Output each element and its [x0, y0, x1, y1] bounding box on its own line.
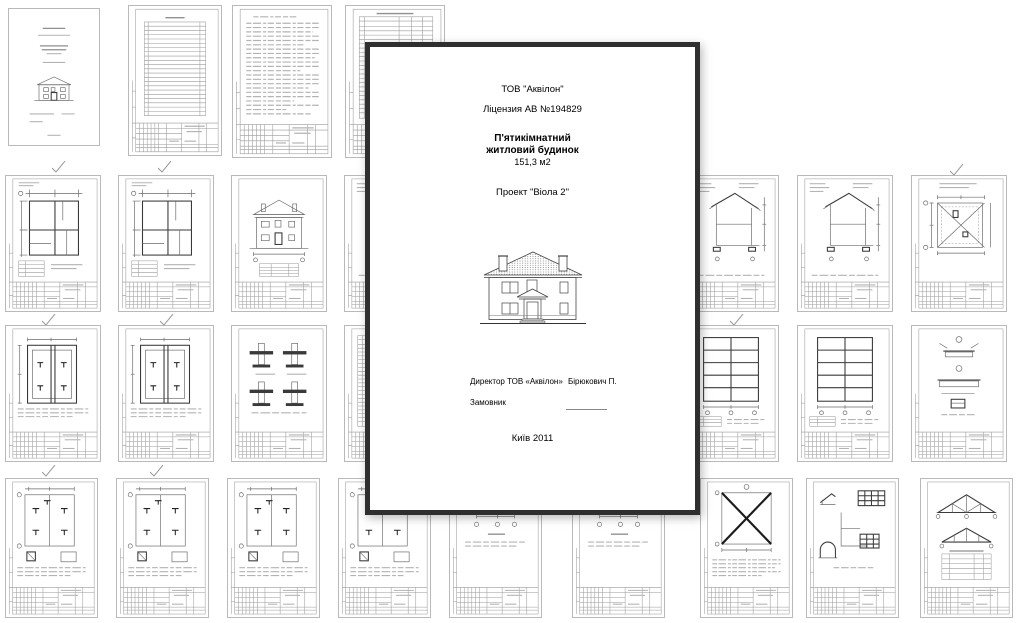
fold-mark [158, 160, 172, 172]
director-label: Директор ТОВ «Аквілон» [470, 377, 563, 386]
city-year: Київ 2011 [370, 433, 695, 444]
fold-mark [950, 163, 964, 175]
structural-plan-drawing [6, 479, 97, 617]
sheet-thumbnail[interactable] [5, 478, 98, 618]
section-drawing [798, 176, 892, 311]
sheet-thumbnail[interactable] [5, 325, 101, 462]
fold-mark [160, 313, 174, 325]
toc-sheet-drawing [129, 6, 221, 155]
house-elevation-drawing [480, 249, 586, 327]
roof-plan-drawing [912, 176, 1006, 311]
structural-plan-drawing [228, 479, 319, 617]
fold-mark [42, 313, 56, 325]
foundation-plan-drawing [119, 326, 213, 461]
fold-mark [52, 160, 66, 172]
truss-details-drawing [807, 479, 898, 617]
drawing-set-viewer: ТОВ "Аквілон" Ліцензия АВ №194829 П'ятик… [0, 0, 1024, 623]
fold-mark [730, 313, 744, 325]
customer-signature-line [566, 409, 607, 410]
foundation-plan-drawing [6, 326, 100, 461]
detail-sheet-drawing [912, 326, 1006, 461]
customer-label: Замовник [470, 398, 506, 407]
sheet-thumbnail[interactable] [8, 8, 100, 146]
slab-plan-drawing [798, 326, 892, 461]
structural-plan-drawing [117, 479, 208, 617]
cover-page-preview[interactable]: ТОВ "Аквілон" Ліцензия АВ №194829 П'ятик… [365, 42, 700, 515]
license-number: Ліцензия АВ №194829 [370, 104, 695, 115]
fold-mark [42, 464, 56, 476]
sheet-thumbnail[interactable] [231, 325, 327, 462]
detail-sections-drawing [232, 326, 326, 461]
sheet-thumbnail[interactable] [700, 478, 793, 618]
truss-drawing [921, 479, 1012, 617]
sheet-thumbnail[interactable] [797, 325, 893, 462]
house-area: 151,3 м2 [370, 157, 695, 167]
company-name: ТОВ "Аквілон" [370, 84, 695, 95]
sheet-thumbnail[interactable] [920, 478, 1013, 618]
sheet-thumbnail[interactable] [118, 325, 214, 462]
fold-mark [150, 464, 164, 476]
project-name: Проект "Віола 2" [370, 187, 695, 198]
sheet-thumbnail[interactable] [232, 5, 332, 158]
director-name: Бірюкович П. [568, 377, 617, 386]
project-title-line1: П'ятикімнатний [370, 133, 695, 144]
sheet-thumbnail[interactable] [797, 175, 893, 312]
roof-framing-drawing [701, 479, 792, 617]
sheet-thumbnail[interactable] [116, 478, 209, 618]
sheet-thumbnail[interactable] [227, 478, 320, 618]
floorplan-drawing [6, 176, 100, 311]
elevation-drawing [232, 176, 326, 311]
text-sheet-drawing [233, 6, 331, 157]
floorplan-drawing [119, 176, 213, 311]
sheet-thumbnail[interactable] [118, 175, 214, 312]
sheet-thumbnail[interactable] [5, 175, 101, 312]
cover-sheet-drawing [9, 9, 99, 145]
sheet-thumbnail[interactable] [911, 325, 1007, 462]
project-title-line2: житловий будинок [370, 145, 695, 156]
sheet-thumbnail[interactable] [806, 478, 899, 618]
sheet-thumbnail[interactable] [231, 175, 327, 312]
sheet-thumbnail[interactable] [128, 5, 222, 156]
sheet-thumbnail[interactable] [911, 175, 1007, 312]
